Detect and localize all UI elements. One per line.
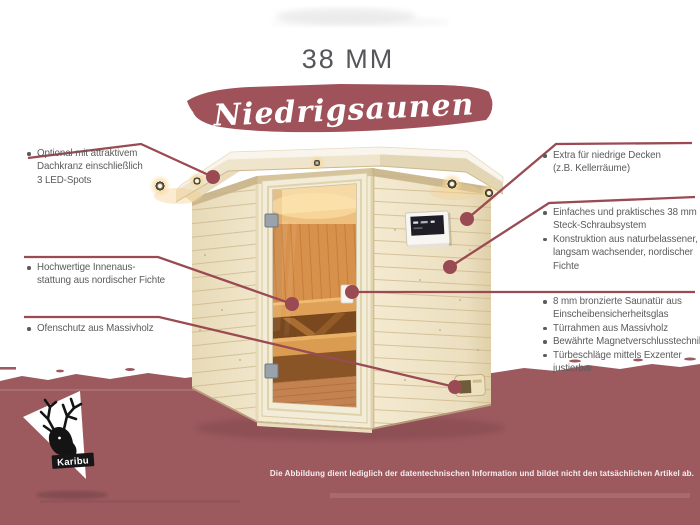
control-panel	[405, 211, 452, 249]
note-oven-guard: Ofenschutz aus Massivholz	[27, 322, 162, 335]
bullet-dot	[543, 354, 547, 358]
note-door-group: 8 mm bronzierte Saunatür aus Einscheiben…	[543, 295, 700, 375]
note-low-ceiling: Extra für niedrige Decken (z.B. Kellerrä…	[543, 149, 668, 176]
note-interior: Hochwertige Innenaus- stattung aus nordi…	[27, 261, 174, 288]
disclaimer-text: Die Abbildung dient lediglich der datent…	[270, 469, 694, 478]
bullet-dot	[543, 154, 547, 158]
page-title: 38 MM	[248, 44, 448, 75]
top-smudge	[270, 8, 450, 27]
door-hinge-top	[265, 214, 278, 227]
logo-wordmark: Karibu	[57, 455, 90, 468]
bullet-dot	[27, 266, 31, 270]
door-hinge-bottom	[265, 364, 278, 378]
bullet-dot	[543, 340, 547, 344]
product-infographic: Karibu 38 MM Niedrigsaunen Optional mit …	[0, 0, 700, 525]
bullet-dot	[27, 327, 31, 331]
note-construction-group: Einfaches und praktisches 38 mm Steck-Sc…	[543, 206, 700, 273]
bullet-dot	[543, 327, 547, 331]
bullet-dot	[27, 152, 31, 156]
bullet-dot	[543, 238, 547, 242]
bullet-dot	[543, 300, 547, 304]
sauna-door	[257, 173, 372, 433]
note-roof-crown: Optional mit attraktivem Dachkranz einsc…	[27, 147, 150, 187]
bullet-dot	[543, 211, 547, 215]
